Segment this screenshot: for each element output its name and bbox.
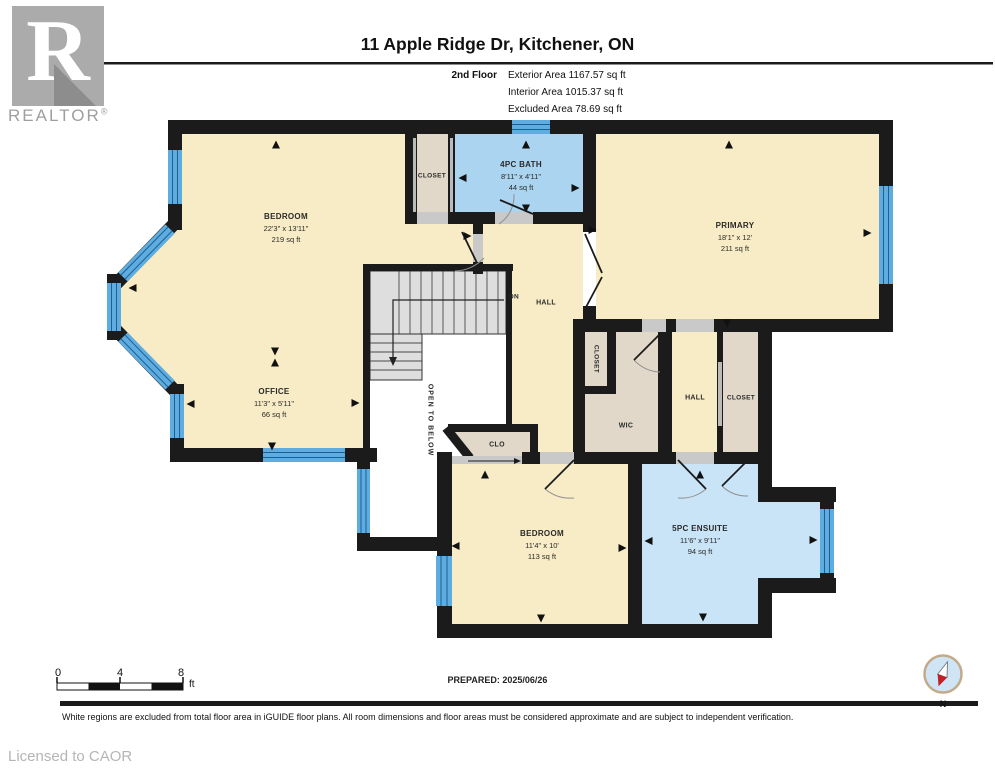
scale-tick-8: 8 [178,667,184,679]
label-clo: CLO [489,442,505,449]
label-dn: DN [509,294,519,301]
realtor-logo: R [12,6,104,106]
licensed-to-text: Licensed to CAOR [8,748,132,765]
registered-mark: ® [101,106,110,116]
scale-unit: ft [189,679,195,690]
room-label-office: OFFICE 11'3" x 5'11" 66 sq ft [254,386,294,421]
room-label-ensuite: 5PC ENSUITE 11'6" x 9'11" 94 sq ft [672,523,728,558]
scale-tick-0: 0 [55,667,61,679]
label-wic: WIC [619,423,634,430]
excluded-area-stat: Excluded Area 78.69 sq ft [508,104,622,115]
realtor-logo-triangle [54,64,96,106]
prepared-date: PREPARED: 2025/06/26 [330,675,665,685]
floor-plan-svg [0,0,995,768]
compass-icon [925,656,962,693]
header-divider-line [30,62,993,65]
interior-area-stat: Interior Area 1015.37 sq ft [508,87,623,98]
realtor-logo-text: REALTOR® [8,106,109,126]
label-closet-right: CLOSET [727,395,755,402]
page-title: 11 Apple Ridge Dr, Kitchener, ON [0,34,995,55]
floor-label: 2nd Floor [380,70,497,81]
disclaimer-text: White regions are excluded from total fl… [62,712,962,722]
footer-divider-line [60,701,978,706]
room-label-primary: PRIMARY 18'1" x 12' 211 sq ft [716,220,755,255]
scale-tick-4: 4 [117,667,123,679]
room-label-bedroom1: BEDROOM 22'3" x 13'11" 219 sq ft [264,211,309,246]
label-closet-mid: CLOSET [593,345,600,373]
room-label-bedroom2: BEDROOM 11'4" x 10' 113 sq ft [520,528,564,563]
compass-north-label: N [940,699,947,709]
room-label-bath: 4PC BATH 8'11" x 4'11" 44 sq ft [500,159,542,194]
label-hall-main: HALL [536,300,556,307]
floor-plan-page: { "header": { "logo_letter": "R", "logo_… [0,0,995,768]
label-hall-right: HALL [685,395,705,402]
exterior-area-stat: Exterior Area 1167.57 sq ft [508,70,626,81]
label-open-to-below: OPEN TO BELOW [427,384,434,456]
label-closet-top: CLOSET [418,173,446,180]
